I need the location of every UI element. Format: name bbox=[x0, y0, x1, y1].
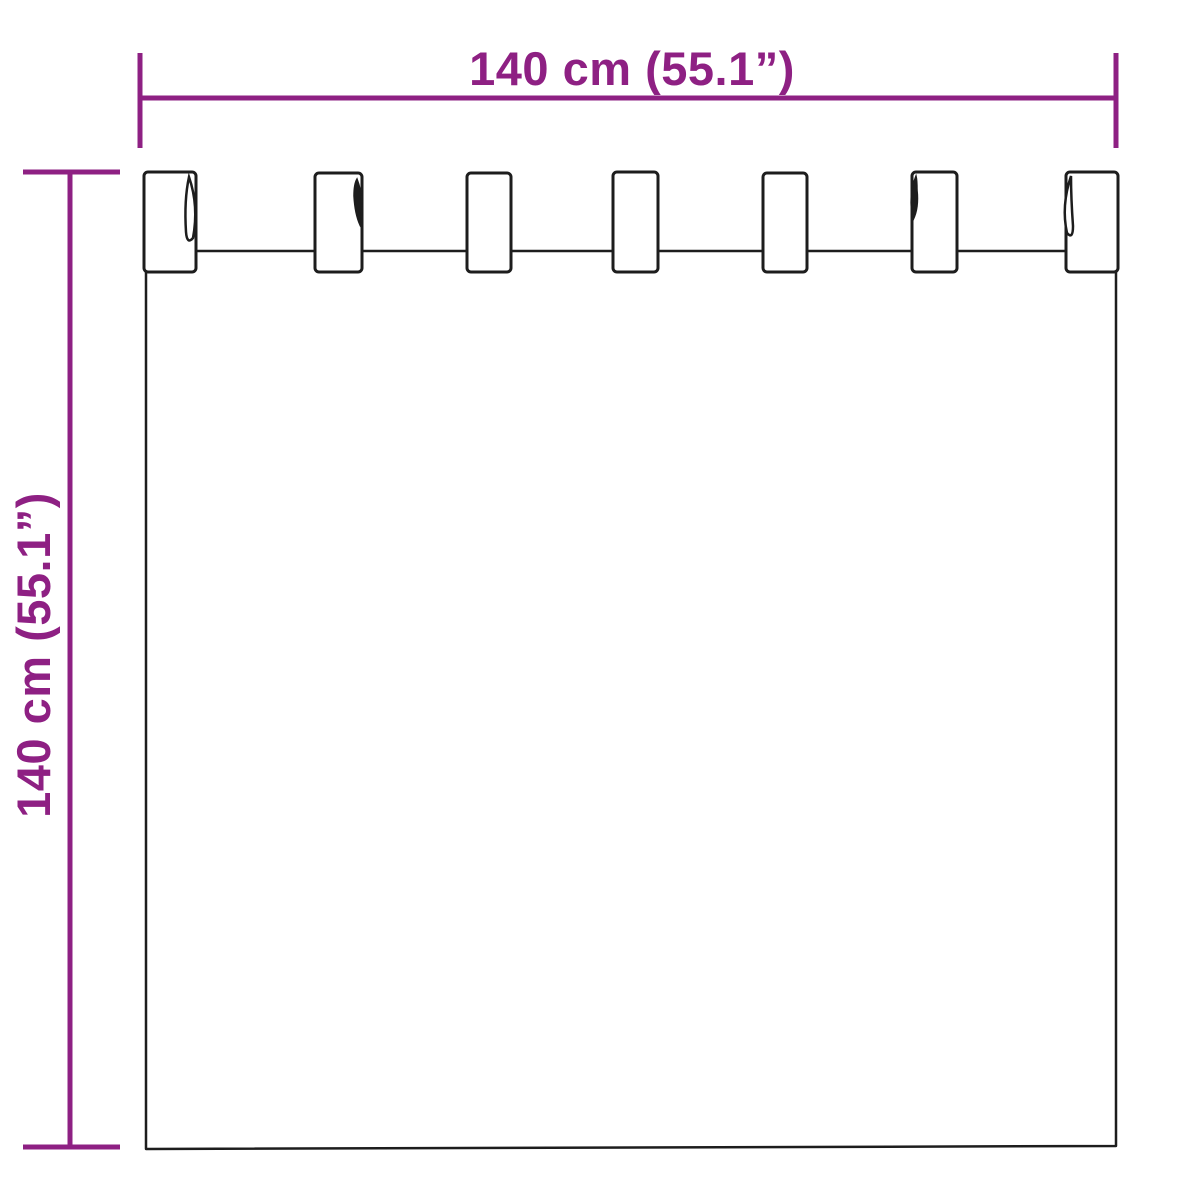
curtain-panel bbox=[146, 251, 1116, 1149]
curtain-tab-4 bbox=[613, 172, 658, 272]
curtain-tab-3 bbox=[467, 173, 511, 272]
width-dimension-label: 140 cm (55.1”) bbox=[469, 42, 795, 95]
height-dimension-label: 140 cm (55.1”) bbox=[7, 492, 60, 818]
curtain-tab-5 bbox=[763, 173, 807, 272]
curtain-drawing bbox=[144, 172, 1118, 1149]
curtain-tab-6 bbox=[912, 172, 957, 272]
curtain-dimension-diagram: 140 cm (55.1”) 140 cm (55.1”) bbox=[0, 0, 1200, 1200]
diagram-canvas: 140 cm (55.1”) 140 cm (55.1”) bbox=[0, 0, 1200, 1200]
